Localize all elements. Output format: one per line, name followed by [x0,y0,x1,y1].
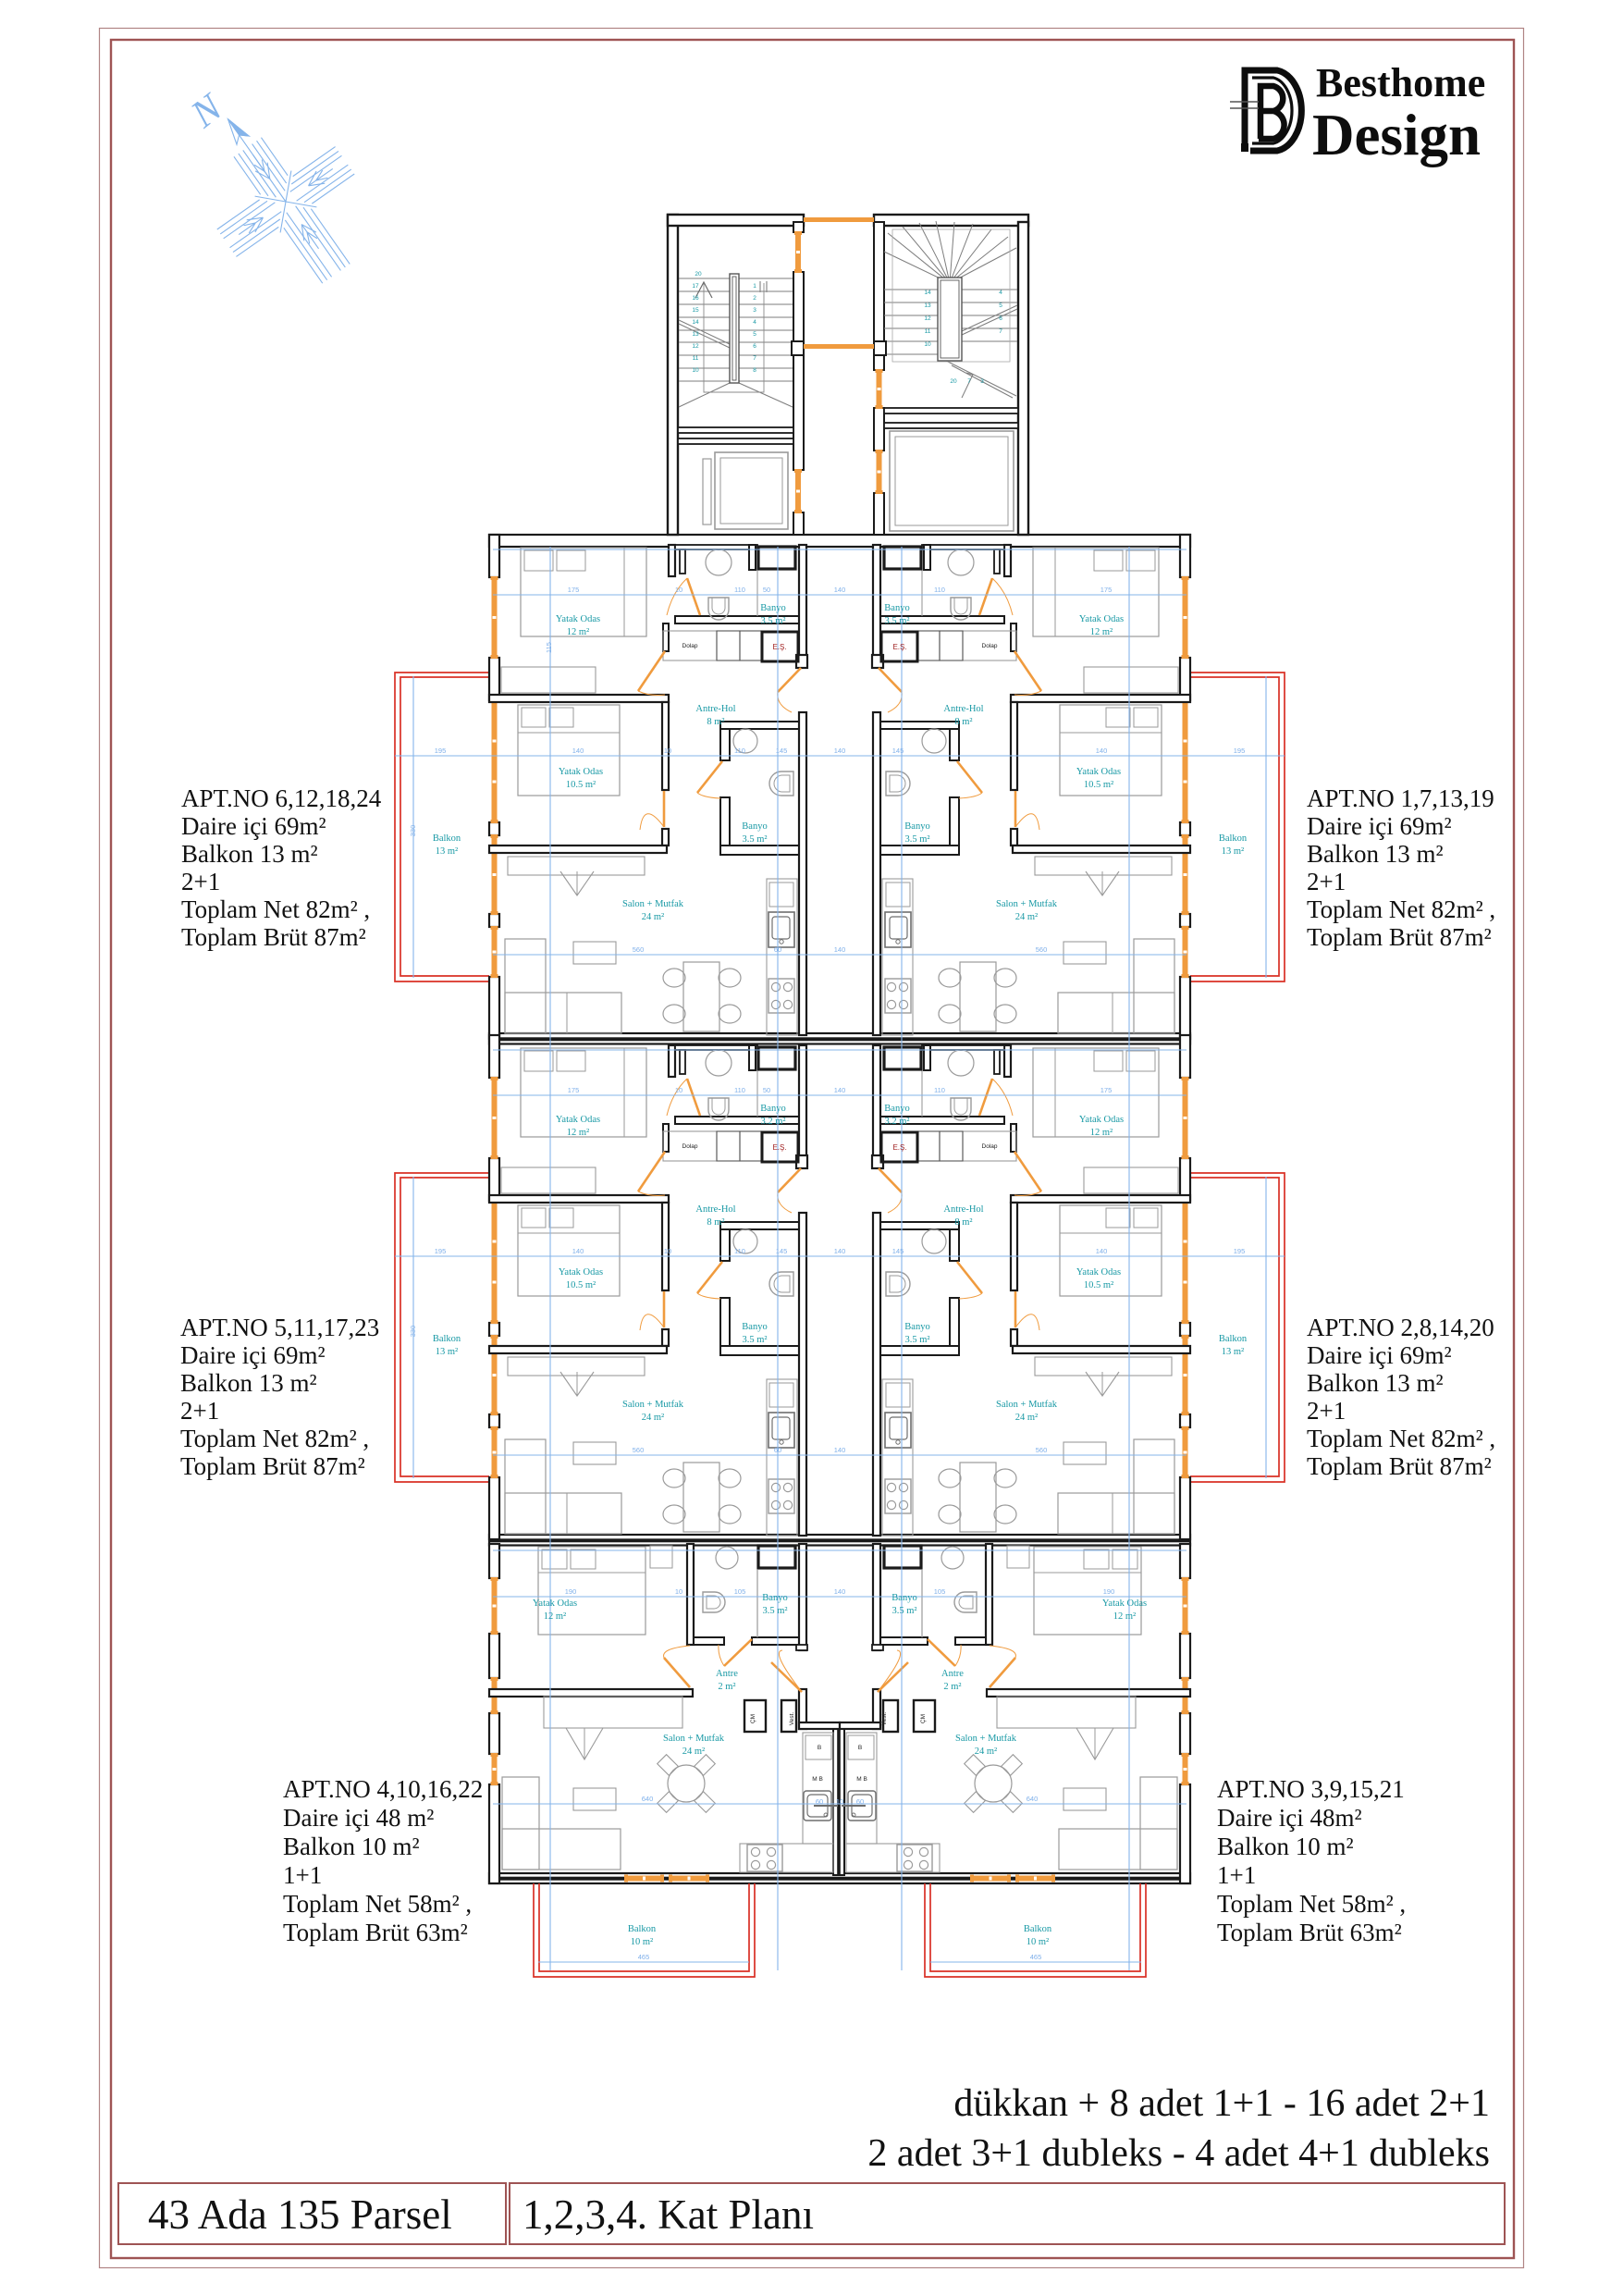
svg-text:7: 7 [967,378,971,385]
svg-text:12: 12 [692,343,699,350]
svg-text:Balkon 13 m²: Balkon 13 m² [181,840,318,868]
svg-text:13 m²: 13 m² [436,846,458,857]
svg-text:Antre-Hol: Antre-Hol [695,1204,735,1215]
svg-text:190: 190 [565,1587,577,1596]
svg-text:E.Ş.: E.Ş. [772,643,786,651]
svg-text:6: 6 [753,343,756,350]
svg-text:13 m²: 13 m² [1222,846,1244,857]
svg-text:4: 4 [753,319,756,326]
svg-text:10: 10 [675,586,682,594]
svg-text:175: 175 [1100,1086,1113,1094]
svg-text:140: 140 [572,747,584,755]
svg-text:10: 10 [692,367,699,374]
svg-text:Yatak Odas: Yatak Odas [556,614,600,624]
svg-text:Salon + Mutfak: Salon + Mutfak [663,1734,725,1744]
svg-text:2 adet 3+1 dubleks - 4 adet 4+: 2 adet 3+1 dubleks - 4 adet 4+1 dubleks [867,2132,1490,2175]
svg-text:2 m²: 2 m² [943,1682,961,1692]
svg-text:560: 560 [633,945,645,954]
svg-text:Balkon: Balkon [433,1334,461,1344]
svg-text:M B: M B [856,1776,867,1783]
svg-text:2+1: 2+1 [1307,868,1346,895]
svg-text:190: 190 [1103,1587,1115,1596]
svg-text:Toplam Net 58m² ,: Toplam Net 58m² , [283,1890,472,1918]
svg-text:10: 10 [675,1086,682,1094]
svg-text:50: 50 [763,586,770,594]
svg-text:560: 560 [1036,1446,1048,1454]
svg-text:Yatak Odas: Yatak Odas [1076,767,1121,777]
svg-text:Balkon 10 m²: Balkon 10 m² [283,1833,420,1860]
svg-text:175: 175 [568,586,580,594]
svg-text:2+1: 2+1 [1307,1397,1346,1425]
svg-text:Balkon 13 m²: Balkon 13 m² [1307,840,1444,868]
svg-text:110: 110 [934,586,945,594]
svg-text:10.5 m²: 10.5 m² [1084,780,1113,790]
svg-text:3.5 m²: 3.5 m² [891,1606,916,1616]
svg-text:175: 175 [568,1086,580,1094]
svg-text:Daire içi 48 m²: Daire içi 48 m² [283,1804,434,1832]
svg-text:APT.NO 5,11,17,23: APT.NO 5,11,17,23 [180,1314,379,1341]
svg-text:Banyo: Banyo [891,1593,916,1603]
svg-text:Antre: Antre [941,1669,964,1679]
svg-text:ÇM: ÇM [750,1714,756,1723]
svg-text:Dolap: Dolap [982,643,998,649]
svg-text:Banyo: Banyo [904,1322,929,1332]
svg-text:13: 13 [692,331,699,338]
svg-text:12 m²: 12 m² [567,627,589,637]
svg-text:Toplam Brüt 63m²: Toplam Brüt 63m² [1217,1919,1402,1946]
svg-text:24 m²: 24 m² [642,1413,664,1423]
svg-text:M B: M B [812,1776,823,1783]
svg-text:2+1: 2+1 [180,1397,219,1425]
svg-text:N: N [183,85,232,136]
svg-text:Daire içi 48m²: Daire içi 48m² [1217,1804,1362,1832]
svg-text:12: 12 [924,315,931,322]
svg-text:2: 2 [753,295,756,302]
svg-text:140: 140 [834,945,846,954]
svg-text:APT.NO 3,9,15,21: APT.NO 3,9,15,21 [1217,1775,1405,1803]
svg-text:195: 195 [1234,747,1246,755]
svg-text:24 m²: 24 m² [642,912,664,922]
svg-text:12 m²: 12 m² [1113,1611,1136,1622]
svg-text:Banyo: Banyo [742,1322,767,1332]
svg-text:3: 3 [980,378,984,385]
svg-text:3.2 m²: 3.2 m² [760,1117,785,1127]
svg-text:3.5 m²: 3.5 m² [742,834,767,845]
svg-text:Banyo: Banyo [884,603,909,613]
svg-text:560: 560 [1036,945,1048,954]
svg-text:13: 13 [924,302,931,309]
svg-text:Toplam Brüt 87m²: Toplam Brüt 87m² [181,923,366,951]
svg-text:Balkon 10 m²: Balkon 10 m² [1217,1833,1354,1860]
svg-text:1+1: 1+1 [283,1861,322,1889]
svg-text:Salon + Mutfak: Salon + Mutfak [996,899,1058,909]
svg-text:17: 17 [692,283,699,290]
svg-text:Toplam Net 82m² ,: Toplam Net 82m² , [1307,895,1495,923]
svg-text:10: 10 [924,341,931,348]
svg-text:8 m²: 8 m² [954,1217,972,1228]
svg-text:12 m²: 12 m² [567,1128,589,1138]
svg-text:3.2 m²: 3.2 m² [884,1117,909,1127]
svg-text:20: 20 [695,271,702,278]
svg-text:Yatak Odas: Yatak Odas [1079,614,1124,624]
svg-text:140: 140 [834,1446,846,1454]
svg-text:Banyo: Banyo [884,1104,909,1114]
svg-text:5: 5 [999,302,1002,309]
svg-text:Dolap: Dolap [982,1143,998,1150]
svg-text:8: 8 [753,367,756,374]
svg-text:Salon + Mutfak: Salon + Mutfak [996,1400,1058,1410]
svg-text:Salon + Mutfak: Salon + Mutfak [622,899,684,909]
svg-text:Besthome: Besthome [1316,60,1485,105]
svg-text:105: 105 [734,1587,746,1596]
svg-text:Toplam Brüt 87m²: Toplam Brüt 87m² [180,1452,365,1480]
svg-text:10 m²: 10 m² [631,1937,653,1947]
svg-text:11: 11 [925,328,931,335]
svg-text:Yatak Odas: Yatak Odas [1102,1599,1147,1609]
svg-text:APT.NO 4,10,16,22: APT.NO 4,10,16,22 [283,1775,483,1803]
svg-text:140: 140 [1096,747,1108,755]
svg-text:110: 110 [734,1086,745,1094]
svg-text:560: 560 [633,1446,645,1454]
svg-text:Yatak Odas: Yatak Odas [1076,1267,1121,1278]
svg-text:8 m²: 8 m² [707,717,724,727]
svg-text:Balkon: Balkon [1219,833,1248,844]
svg-text:640: 640 [1027,1795,1039,1803]
svg-text:Yatak Odas: Yatak Odas [559,1267,603,1278]
svg-text:Toplam Brüt 87m²: Toplam Brüt 87m² [1307,1452,1492,1480]
svg-text:Banyo: Banyo [904,821,929,832]
svg-text:Toplam Net 58m² ,: Toplam Net 58m² , [1217,1890,1406,1918]
svg-text:2 m²: 2 m² [718,1682,735,1692]
svg-text:465: 465 [638,1953,650,1961]
svg-text:7: 7 [753,355,756,362]
svg-text:B: B [818,1745,821,1751]
svg-text:Banyo: Banyo [760,1104,785,1114]
svg-text:Banyo: Banyo [742,821,767,832]
svg-text:Design: Design [1312,103,1481,167]
svg-text:145: 145 [892,1247,904,1255]
svg-text:110: 110 [734,586,745,594]
svg-text:Dolap: Dolap [682,643,698,649]
svg-text:60: 60 [774,1446,781,1454]
svg-text:Toplam Brüt 87m²: Toplam Brüt 87m² [1307,923,1492,951]
svg-text:24 m²: 24 m² [682,1747,705,1757]
svg-text:Salon + Mutfak: Salon + Mutfak [622,1400,684,1410]
svg-text:10.5 m²: 10.5 m² [1084,1280,1113,1290]
svg-text:3.5 m²: 3.5 m² [904,834,929,845]
svg-text:8 m²: 8 m² [954,717,972,727]
svg-text:Daire içi 69m²: Daire içi 69m² [181,812,326,840]
svg-text:Dolap: Dolap [682,1143,698,1150]
svg-text:5: 5 [753,331,756,338]
svg-text:24 m²: 24 m² [1015,1413,1038,1423]
svg-text:Toplam Net 82m² ,: Toplam Net 82m² , [180,1425,369,1452]
svg-text:140: 140 [572,1247,584,1255]
svg-text:3.5 m²: 3.5 m² [904,1335,929,1345]
svg-text:14: 14 [692,319,699,326]
svg-text:14: 14 [924,290,931,296]
svg-text:4: 4 [999,290,1002,296]
svg-text:Balkon: Balkon [628,1924,657,1934]
svg-text:145: 145 [776,1247,788,1255]
svg-text:Balkon: Balkon [1219,1334,1248,1344]
svg-text:12 m²: 12 m² [1090,1128,1113,1138]
svg-text:12 m²: 12 m² [1090,627,1113,637]
svg-text:10 m²: 10 m² [1027,1937,1049,1947]
svg-text:10: 10 [664,747,671,755]
svg-text:Daire içi 69m²: Daire içi 69m² [1307,1341,1452,1369]
svg-text:195: 195 [1234,1247,1246,1255]
svg-text:13 m²: 13 m² [1222,1347,1244,1357]
svg-text:E.Ş.: E.Ş. [892,1143,906,1152]
svg-text:Banyo: Banyo [760,603,785,613]
svg-text:195: 195 [435,1247,447,1255]
svg-text:Yatak Odas: Yatak Odas [1079,1115,1124,1125]
svg-text:20: 20 [950,378,957,385]
svg-text:ÇM: ÇM [920,1714,927,1723]
svg-text:43 Ada 135 Parsel: 43 Ada 135 Parsel [148,2191,452,2238]
svg-text:Antre-Hol: Antre-Hol [695,704,735,714]
svg-text:E.Ş.: E.Ş. [892,643,906,651]
svg-text:140: 140 [834,747,846,755]
svg-text:140: 140 [1096,1247,1108,1255]
svg-text:1,2,3,4. Kat Planı: 1,2,3,4. Kat Planı [523,2191,814,2238]
svg-text:10: 10 [836,1797,843,1806]
svg-text:465: 465 [1030,1953,1042,1961]
svg-text:Yatak Odas: Yatak Odas [559,767,603,777]
svg-text:dükkan + 8 adet 1+1 - 16 adet: dükkan + 8 adet 1+1 - 16 adet 2+1 [953,2082,1490,2125]
svg-text:15: 15 [692,307,699,314]
svg-text:Yatak Odas: Yatak Odas [556,1115,600,1125]
svg-text:Balkon 13 m²: Balkon 13 m² [1307,1369,1444,1397]
svg-text:110: 110 [934,1086,945,1094]
svg-text:Vest.: Vest. [881,1712,888,1726]
svg-text:115: 115 [545,642,553,653]
svg-text:10.5 m²: 10.5 m² [566,780,596,790]
svg-text:Balkon 13 m²: Balkon 13 m² [180,1369,317,1397]
svg-text:7: 7 [999,328,1002,335]
svg-text:Toplam Net 82m² ,: Toplam Net 82m² , [1307,1425,1495,1452]
svg-text:3.5 m²: 3.5 m² [742,1335,767,1345]
svg-text:2+1: 2+1 [181,868,220,895]
svg-text:330: 330 [409,1326,417,1338]
svg-text:Yatak Odas: Yatak Odas [533,1599,577,1609]
svg-text:Banyo: Banyo [762,1593,787,1603]
svg-text:110: 110 [734,747,745,755]
svg-text:3.5 m²: 3.5 m² [760,616,785,626]
svg-text:B: B [858,1745,862,1751]
svg-text:145: 145 [892,747,904,755]
svg-text:145: 145 [776,747,788,755]
svg-text:11: 11 [693,355,699,362]
svg-text:3: 3 [753,307,756,314]
svg-text:Balkon: Balkon [433,833,461,844]
svg-text:Antre: Antre [716,1669,738,1679]
svg-text:640: 640 [642,1795,654,1803]
svg-text:110: 110 [734,1247,745,1255]
svg-text:195: 195 [435,747,447,755]
svg-text:8 m²: 8 m² [707,1217,724,1228]
svg-text:50: 50 [763,1086,770,1094]
svg-text:E.Ş.: E.Ş. [772,1143,786,1152]
svg-text:APT.NO 6,12,18,24: APT.NO 6,12,18,24 [181,784,382,812]
svg-text:13 m²: 13 m² [436,1347,458,1357]
svg-text:Daire içi 69m²: Daire içi 69m² [1307,812,1452,840]
svg-text:10.5 m²: 10.5 m² [566,1280,596,1290]
svg-text:6: 6 [999,315,1002,322]
svg-text:Salon + Mutfak: Salon + Mutfak [955,1734,1017,1744]
svg-text:Antre-Hol: Antre-Hol [943,1204,983,1215]
svg-text:60: 60 [774,945,781,954]
svg-text:Antre-Hol: Antre-Hol [943,704,983,714]
svg-text:APT.NO 1,7,13,19: APT.NO 1,7,13,19 [1307,784,1494,812]
svg-text:60: 60 [856,1797,864,1806]
svg-text:1: 1 [753,283,756,290]
svg-text:3.5 m²: 3.5 m² [884,616,909,626]
svg-text:16: 16 [692,295,699,302]
svg-text:140: 140 [834,1587,846,1596]
svg-text:140: 140 [834,1086,846,1094]
svg-text:Toplam Brüt 63m²: Toplam Brüt 63m² [283,1919,468,1946]
svg-text:105: 105 [934,1587,946,1596]
svg-text:10: 10 [675,1587,682,1596]
svg-text:24 m²: 24 m² [1015,912,1038,922]
svg-text:1+1: 1+1 [1217,1861,1256,1889]
svg-text:Vest.: Vest. [789,1712,795,1726]
svg-text:3.5 m²: 3.5 m² [762,1606,787,1616]
svg-text:140: 140 [834,586,846,594]
svg-text:Toplam Net 82m² ,: Toplam Net 82m² , [181,895,370,923]
svg-text:12 m²: 12 m² [544,1611,566,1622]
svg-text:175: 175 [1100,586,1113,594]
svg-text:60: 60 [816,1797,823,1806]
svg-text:Balkon: Balkon [1024,1924,1052,1934]
svg-text:10: 10 [664,1247,671,1255]
svg-text:24 m²: 24 m² [975,1747,997,1757]
svg-text:140: 140 [834,1247,846,1255]
svg-text:330: 330 [409,825,417,837]
svg-text:APT.NO 2,8,14,20: APT.NO 2,8,14,20 [1307,1314,1494,1341]
svg-text:Daire içi 69m²: Daire içi 69m² [180,1341,326,1369]
